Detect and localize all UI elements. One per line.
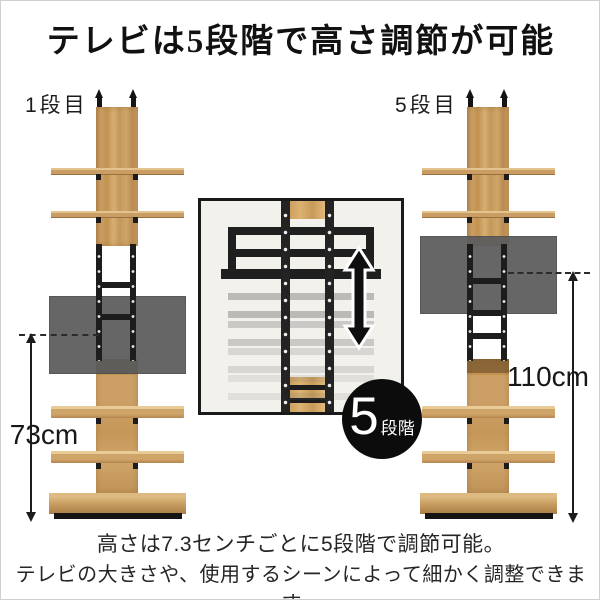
badge-suffix: 段階 [381,414,415,439]
upper-shelf [422,168,555,175]
level-label-left: 1段目 [25,89,88,119]
base-plate [49,493,186,514]
upper-wood-panel [467,107,509,246]
lower-shelf [51,406,184,418]
shelf-clip [467,463,472,469]
base-trim [54,513,182,519]
product-infographic: テレビは5段階で高さ調節が可能 1段目 73cm 5段目 [0,0,600,600]
shelf-clip [504,463,509,469]
lower-shelf [422,451,555,463]
level-label-right: 5段目 [395,89,458,119]
shelf-clip [96,418,101,424]
mount-rail [467,244,473,361]
badge-number: 5 [349,379,378,455]
upper-wood-panel [96,107,138,246]
shelf-clip [133,418,138,424]
mount-rung [102,314,130,320]
shelf-clip [467,418,472,424]
mount-rung [473,310,501,316]
mount-rail [501,244,507,361]
shelf-clip [133,217,138,223]
lower-wood-panel [96,359,138,494]
shelf-clip [96,463,101,469]
mount-rail [130,244,136,361]
height-value-right: 110cm [507,361,597,393]
mount-rung [473,278,501,284]
shelf-clip [467,217,472,223]
shelf-clip [467,174,472,180]
shelf-clip [504,174,509,180]
bracket-bar [228,227,374,235]
mount-rail [96,244,102,361]
page-title: テレビは5段階で高さ調節が可能 [1,14,600,62]
ghost-bar [228,366,374,373]
upper-shelf [51,211,184,218]
five-steps-badge: 5 段階 [342,379,422,459]
mount-rung [473,333,501,339]
shelf-clip [133,463,138,469]
lower-shelf [422,406,555,418]
vertical-rail [325,201,334,412]
up-down-arrow-icon [341,245,377,351]
shelf-clip [96,217,101,223]
lower-shelf [51,451,184,463]
mount-rung [102,282,130,288]
shelf-clip [504,418,509,424]
base-plate [420,493,557,514]
upper-shelf [422,211,555,218]
lower-wood-panel [467,359,509,494]
upper-shelf [51,168,184,175]
height-value-left: 73cm [5,419,83,451]
shelf-clip [133,174,138,180]
tv-screen [420,236,557,314]
bracket-side [228,227,236,269]
caption-line-2: テレビの大きさや、使用するシーンによって細かく調整できます。 [1,558,600,600]
caption-line-1: 高さは7.3センチごとに5段階で調節可能。 [1,528,600,558]
vertical-rail [281,201,290,412]
shelf-clip [96,174,101,180]
shelf-clip [504,217,509,223]
height-measure-arrow [572,280,574,514]
base-trim [425,513,553,519]
